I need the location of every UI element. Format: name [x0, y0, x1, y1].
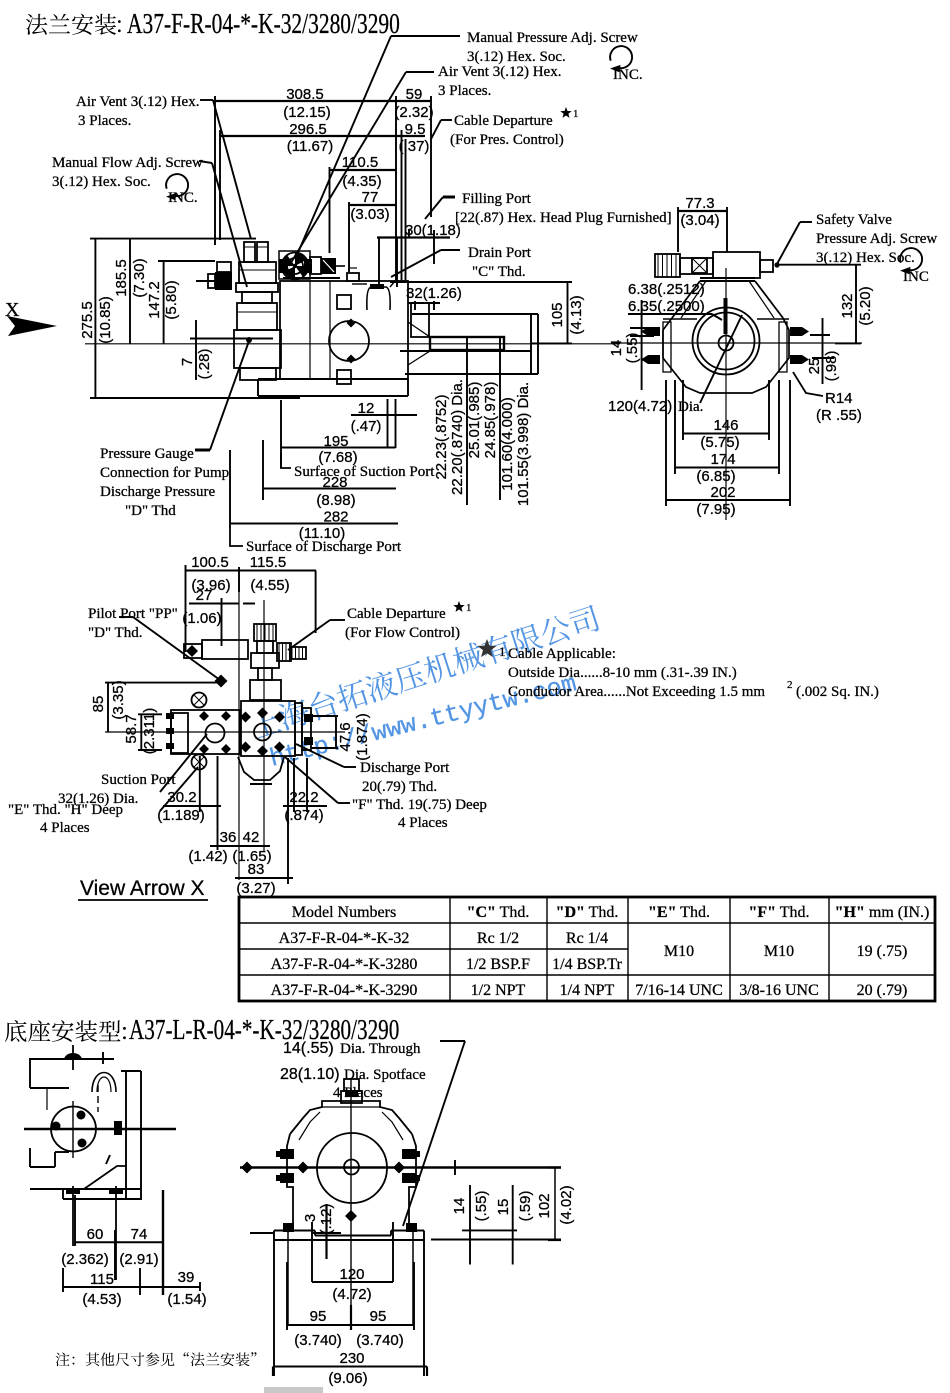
- svg-text:(For Pres. Control): (For Pres. Control): [450, 132, 564, 148]
- svg-text:"C" Thd.: "C" Thd.: [467, 904, 530, 921]
- svg-text:Conductor Area......Not Exceed: Conductor Area......Not Exceeding 1.5 mm: [508, 684, 765, 700]
- svg-text:"D" Thd.: "D" Thd.: [556, 904, 619, 921]
- svg-text:3/8-16 UNC: 3/8-16 UNC: [739, 982, 819, 999]
- svg-text:A37-F-R-04-*-K-32/3280/3290: A37-F-R-04-*-K-32/3280/3290: [127, 7, 400, 40]
- svg-text:(5.20): (5.20): [857, 286, 874, 325]
- svg-text:115: 115: [90, 1271, 114, 1288]
- svg-text:(4.02): (4.02): [558, 1185, 575, 1224]
- svg-text:Filling Port: Filling Port: [462, 191, 532, 207]
- svg-text:30.2: 30.2: [167, 789, 196, 806]
- svg-text:(12.15): (12.15): [283, 104, 331, 121]
- svg-text:(10.85): (10.85): [97, 296, 114, 344]
- svg-text:(2.32): (2.32): [394, 104, 433, 121]
- svg-text:Discharge Port: Discharge Port: [360, 760, 450, 776]
- svg-text:Air Vent 3(.12) Hex.: Air Vent 3(.12) Hex.: [438, 64, 561, 80]
- svg-text:Cable Departure: Cable Departure: [347, 606, 446, 622]
- svg-text:1: 1: [499, 644, 506, 659]
- svg-text:(3.35): (3.35): [110, 680, 127, 719]
- svg-text:A37-F-R-04-*-K-3280: A37-F-R-04-*-K-3280: [271, 956, 418, 973]
- svg-text:"D" Thd: "D" Thd: [125, 503, 176, 519]
- svg-text:(.98): (.98): [823, 351, 840, 382]
- svg-text:(4.55): (4.55): [250, 577, 289, 594]
- svg-text:83: 83: [248, 861, 265, 878]
- svg-text:(.37): (.37): [399, 138, 430, 155]
- svg-text:7/16-14 UNC: 7/16-14 UNC: [635, 982, 723, 999]
- svg-text:INC.: INC.: [168, 190, 198, 206]
- svg-text:(1.874): (1.874): [354, 713, 371, 761]
- svg-text:4 Places: 4 Places: [40, 820, 90, 836]
- svg-text:Manual Flow Adj. Screw: Manual Flow Adj. Screw: [52, 155, 203, 171]
- svg-text:19 (.75): 19 (.75): [857, 943, 908, 960]
- svg-text:"F" Thd.: "F" Thd.: [748, 904, 809, 921]
- svg-text:"F" Thd. 19(.75) Deep: "F" Thd. 19(.75) Deep: [352, 797, 487, 813]
- svg-text:(4.13): (4.13): [568, 295, 585, 334]
- svg-text:25.01(.985): 25.01(.985): [466, 382, 483, 459]
- svg-text:(5.80): (5.80): [163, 280, 180, 319]
- svg-text:(2.362): (2.362): [61, 1251, 109, 1268]
- svg-text:(.55): (.55): [624, 333, 641, 364]
- svg-text:230: 230: [339, 1350, 364, 1367]
- svg-text:Rc 1/4: Rc 1/4: [566, 930, 608, 947]
- svg-text:Dia. Spotface: Dia. Spotface: [344, 1067, 426, 1083]
- svg-text:(6.85): (6.85): [696, 468, 735, 485]
- svg-text:115.5: 115.5: [250, 554, 286, 571]
- svg-text:(.002 Sq. IN.): (.002 Sq. IN.): [796, 684, 879, 700]
- svg-text:[22(.87) Hex. Head Plug Furnis: [22(.87) Hex. Head Plug Furnished]: [455, 210, 672, 226]
- svg-text:(.28): (.28): [196, 349, 213, 380]
- svg-text:1/4 NPT: 1/4 NPT: [560, 982, 615, 999]
- svg-text:3(.12) Hex. Soc.: 3(.12) Hex. Soc.: [467, 49, 566, 65]
- svg-text:"D" Thd.: "D" Thd.: [88, 625, 142, 641]
- svg-text:20(.79) Thd.: 20(.79) Thd.: [362, 779, 437, 795]
- svg-text:282: 282: [323, 509, 348, 526]
- svg-text:(.874): (.874): [284, 807, 323, 824]
- svg-text:(3.03): (3.03): [350, 206, 389, 223]
- svg-text:Air Vent 3(.12) Hex.: Air Vent 3(.12) Hex.: [76, 94, 199, 110]
- svg-text:(3.740): (3.740): [294, 1332, 342, 1349]
- svg-text:Pilot Port "PP": Pilot Port "PP": [88, 606, 178, 622]
- svg-text:(4.72): (4.72): [332, 1286, 371, 1303]
- svg-text:120: 120: [339, 1266, 364, 1283]
- svg-text:15: 15: [495, 1199, 512, 1216]
- svg-text:(1.54): (1.54): [167, 1291, 206, 1308]
- svg-text:174: 174: [710, 451, 735, 468]
- svg-text:Rc 1/2: Rc 1/2: [477, 930, 519, 947]
- svg-text:M10: M10: [764, 943, 794, 960]
- svg-text:1: 1: [466, 602, 472, 614]
- svg-text:202: 202: [710, 484, 735, 501]
- svg-text:308.5: 308.5: [286, 86, 324, 103]
- svg-text:INC.: INC.: [613, 67, 643, 83]
- svg-text:(2.91): (2.91): [119, 1251, 158, 1268]
- svg-text:Manual Pressure Adj. Screw: Manual Pressure Adj. Screw: [467, 30, 638, 46]
- svg-text:147.2: 147.2: [146, 281, 163, 319]
- svg-text:"E" Thd. "H" Deep: "E" Thd. "H" Deep: [8, 802, 123, 818]
- svg-text:"H" mm (IN.): "H" mm (IN.): [835, 904, 930, 921]
- svg-text:(3.27): (3.27): [236, 880, 275, 897]
- svg-text:Safety Valve: Safety Valve: [816, 212, 892, 228]
- svg-text:27: 27: [196, 587, 213, 604]
- svg-text:(1.06): (1.06): [182, 610, 221, 627]
- svg-text:Model Numbers: Model Numbers: [292, 904, 396, 921]
- svg-text:275.5: 275.5: [79, 301, 96, 339]
- svg-text:185.5: 185.5: [113, 259, 130, 297]
- svg-text:58.7: 58.7: [123, 714, 140, 743]
- svg-text:3: 3: [302, 1214, 319, 1222]
- svg-text:3(.12) Hex. Soc.: 3(.12) Hex. Soc.: [52, 174, 151, 190]
- svg-text:(7.95): (7.95): [696, 501, 735, 518]
- svg-text:25: 25: [806, 358, 823, 375]
- svg-text:47.6: 47.6: [337, 722, 354, 751]
- svg-text:100.5: 100.5: [191, 554, 229, 571]
- svg-text:296.5: 296.5: [289, 121, 327, 138]
- svg-text:Discharge Pressure: Discharge Pressure: [100, 484, 215, 500]
- svg-text:105: 105: [549, 302, 566, 327]
- svg-text:(8.98): (8.98): [316, 492, 355, 509]
- svg-text:9.5: 9.5: [405, 121, 426, 138]
- svg-text:12: 12: [358, 400, 375, 417]
- svg-text:(4.53): (4.53): [82, 1291, 121, 1308]
- svg-text:(4.35): (4.35): [342, 173, 381, 190]
- svg-text:Dia.: Dia.: [678, 399, 703, 415]
- svg-text:Pressure Gauge: Pressure Gauge: [100, 446, 194, 462]
- svg-text:228: 228: [322, 474, 347, 491]
- svg-text:77: 77: [362, 189, 379, 206]
- svg-text:(.55): (.55): [473, 1191, 490, 1222]
- svg-text:1/2 NPT: 1/2 NPT: [471, 982, 526, 999]
- svg-text:View Arrow X: View Arrow X: [80, 877, 205, 900]
- svg-text:14(.55): 14(.55): [283, 1040, 334, 1057]
- svg-text:101.60(4.000): 101.60(4.000): [499, 397, 516, 490]
- svg-text:Pressure Adj. Screw: Pressure Adj. Screw: [816, 231, 937, 247]
- svg-text:22.2: 22.2: [289, 789, 318, 806]
- svg-text:39: 39: [178, 1269, 195, 1286]
- svg-text:195: 195: [323, 433, 348, 450]
- svg-text:74: 74: [131, 1226, 148, 1243]
- svg-text:36: 36: [220, 829, 237, 846]
- svg-text:14: 14: [451, 1198, 468, 1215]
- svg-text:Connection for Pump: Connection for Pump: [100, 465, 229, 481]
- svg-text:95: 95: [310, 1308, 327, 1325]
- svg-text:Cable Departure: Cable Departure: [454, 113, 553, 129]
- svg-text:59: 59: [406, 86, 423, 103]
- svg-text:6.35(.2500): 6.35(.2500): [628, 298, 705, 315]
- svg-text:6.38(.2512): 6.38(.2512): [628, 281, 705, 298]
- svg-text:3 Places.: 3 Places.: [78, 113, 131, 129]
- svg-text:1/4 BSP.Tr: 1/4 BSP.Tr: [552, 956, 622, 973]
- svg-text:(.47): (.47): [351, 418, 382, 435]
- svg-text:Surface of Suction Port: Surface of Suction Port: [294, 464, 435, 480]
- svg-text:85: 85: [90, 696, 107, 713]
- svg-text:3 Places.: 3 Places.: [438, 83, 491, 99]
- svg-text:42: 42: [243, 829, 260, 846]
- svg-text:77.3: 77.3: [685, 195, 714, 212]
- svg-text:101.55(3.998) Dia.: 101.55(3.998) Dia.: [515, 382, 532, 506]
- svg-text:(.59): (.59): [517, 1191, 534, 1222]
- svg-text:(5.75): (5.75): [700, 434, 739, 451]
- svg-text:24.85(.978): 24.85(.978): [482, 382, 499, 459]
- svg-text:22.20(.8740) Dia.: 22.20(.8740) Dia.: [449, 379, 466, 495]
- svg-text:"E" Thd.: "E" Thd.: [648, 904, 710, 921]
- svg-text:(For Flow Control): (For Flow Control): [345, 625, 460, 641]
- svg-text:Drain Port: Drain Port: [468, 245, 532, 261]
- svg-text:(11.67): (11.67): [287, 138, 333, 155]
- svg-text:Surface of Discharge Port: Surface of Discharge Port: [246, 539, 402, 555]
- svg-text:7: 7: [179, 358, 196, 366]
- svg-text:(1.42): (1.42): [188, 848, 227, 865]
- svg-text:(.12): (.12): [318, 1204, 335, 1235]
- svg-text:M10: M10: [664, 943, 694, 960]
- svg-text:132: 132: [839, 293, 856, 318]
- svg-text:R14: R14: [825, 390, 853, 407]
- svg-text:"C" Thd.: "C" Thd.: [472, 264, 526, 280]
- svg-text:30(1.18): 30(1.18): [405, 222, 461, 239]
- svg-text:120(4.72): 120(4.72): [608, 398, 672, 415]
- svg-text:A37-F-R-04-*-K-32: A37-F-R-04-*-K-32: [279, 930, 410, 947]
- svg-text:(3.740): (3.740): [356, 1332, 404, 1349]
- svg-text:4 Places: 4 Places: [398, 815, 448, 831]
- svg-text:102: 102: [536, 1193, 553, 1218]
- svg-text:A37-F-R-04-*-K-3290: A37-F-R-04-*-K-3290: [271, 982, 418, 999]
- svg-text:Dia. Through: Dia. Through: [340, 1041, 421, 1057]
- svg-text:14: 14: [608, 340, 625, 357]
- svg-text:(3.04): (3.04): [680, 212, 719, 229]
- svg-text:20 (.79): 20 (.79): [857, 982, 908, 999]
- svg-text:95: 95: [370, 1308, 387, 1325]
- svg-text:146: 146: [713, 417, 738, 434]
- svg-text:110.5: 110.5: [342, 154, 378, 171]
- svg-text:(1.189): (1.189): [157, 807, 205, 824]
- svg-text:(R .55): (R .55): [816, 407, 862, 424]
- svg-text:28(1.10): 28(1.10): [280, 1066, 340, 1083]
- svg-text:22.23(.8752): 22.23(.8752): [433, 394, 450, 479]
- svg-text:2: 2: [787, 679, 793, 691]
- svg-text:1/2 BSP.F: 1/2 BSP.F: [466, 956, 530, 973]
- svg-text:INC: INC: [903, 269, 929, 285]
- svg-text:Cable Applicable:: Cable Applicable:: [508, 646, 616, 662]
- svg-text:60: 60: [87, 1226, 104, 1243]
- svg-text:32(1.26): 32(1.26): [406, 285, 462, 302]
- svg-text:Outside Dia......8-10 mm (.31-: Outside Dia......8-10 mm (.31-.39 IN.): [508, 665, 737, 681]
- svg-text:1: 1: [573, 108, 579, 120]
- svg-text:(9.06): (9.06): [328, 1370, 367, 1387]
- svg-text:(2.311): (2.311): [141, 708, 158, 754]
